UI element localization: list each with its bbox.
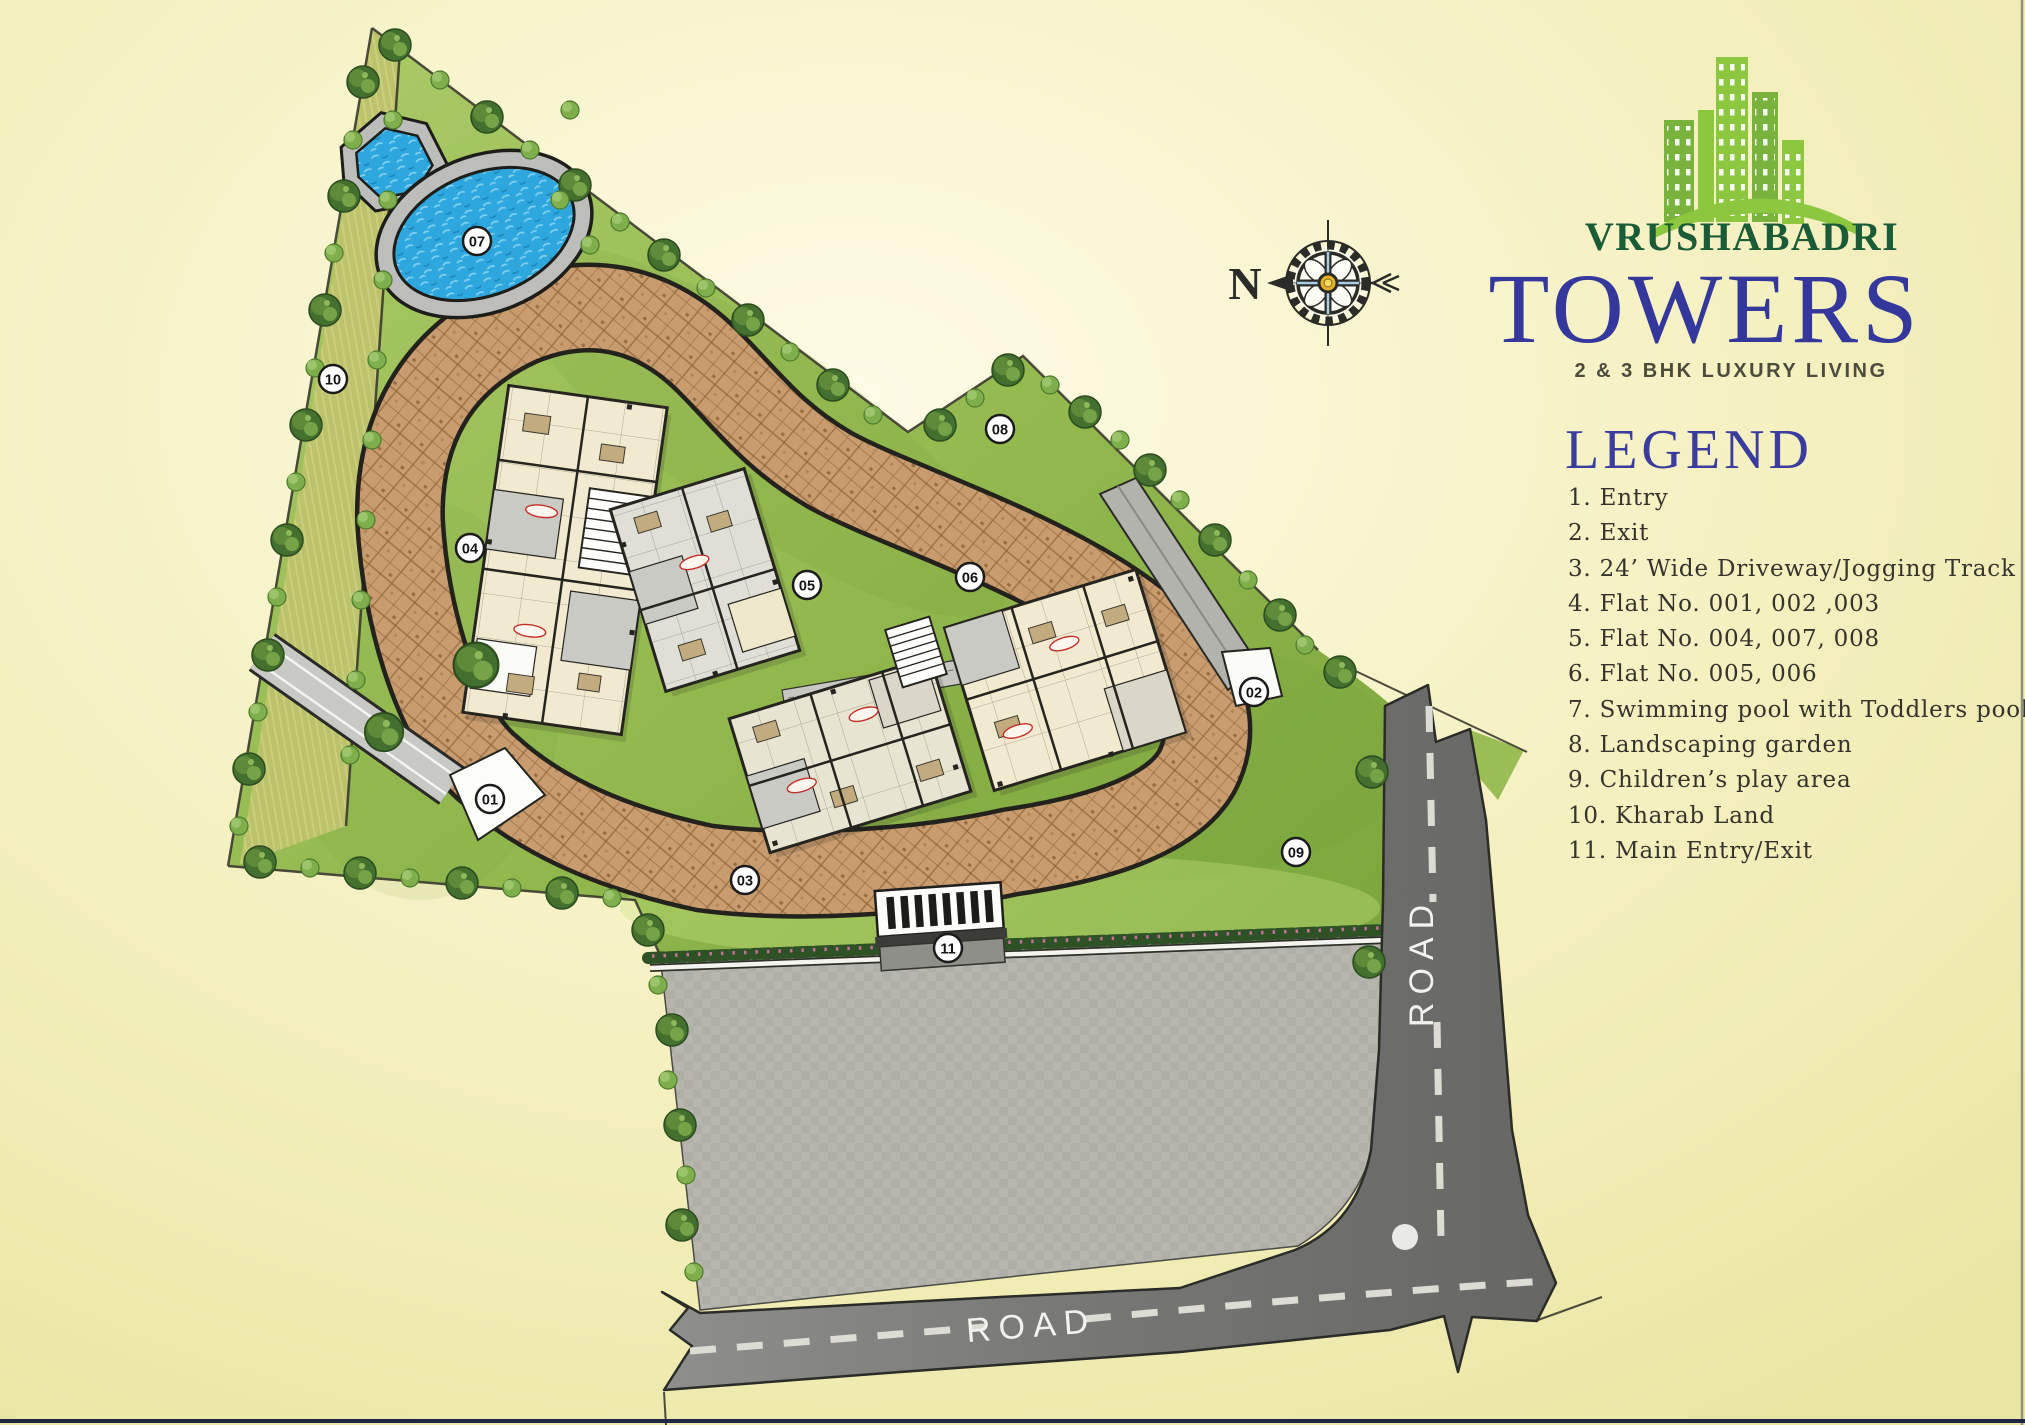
site-plan-poster: ROAD ROAD	[0, 0, 2025, 1425]
legend-item-10: 10. Kharab Land	[1568, 803, 1775, 829]
site-plan-map: ROAD ROAD	[0, 0, 2025, 1425]
svg-text:07: 07	[469, 235, 485, 251]
marker-04: 04	[456, 534, 484, 562]
road-junction-dot	[1392, 1224, 1418, 1250]
svg-text:02: 02	[1246, 686, 1262, 702]
legend-item-4: 4. Flat No. 001, 002 ,003	[1568, 591, 1880, 617]
legend-item-3: 3. 24’ Wide Driveway/Jogging Track	[1568, 556, 2016, 582]
brand-tagline: 2 & 3 BHK LUXURY LIVING	[1574, 360, 1887, 382]
svg-text:09: 09	[1288, 846, 1304, 862]
marker-02: 02	[1240, 678, 1268, 706]
legend-item-9: 9. Children’s play area	[1568, 767, 1851, 793]
marker-10: 10	[319, 365, 347, 393]
road-label-vertical: ROAD	[1403, 897, 1441, 1027]
svg-text:04: 04	[462, 542, 478, 558]
svg-text:08: 08	[992, 423, 1008, 439]
legend-item-2: 2. Exit	[1568, 520, 1649, 546]
marker-07: 07	[463, 227, 491, 255]
marker-01: 01	[476, 785, 504, 813]
marker-08: 08	[986, 415, 1014, 443]
marker-09: 09	[1282, 838, 1310, 866]
legend-item-11: 11. Main Entry/Exit	[1568, 838, 1813, 864]
legend-item-6: 6. Flat No. 005, 006	[1568, 661, 1817, 687]
legend-item-7: 7. Swimming pool with Toddlers pool	[1568, 697, 2025, 723]
brand-name-main: TOWERS	[1488, 253, 1921, 364]
legend-title: LEGEND	[1565, 419, 1813, 481]
svg-text:05: 05	[799, 579, 815, 595]
svg-text:11: 11	[940, 942, 955, 958]
svg-text:01: 01	[482, 793, 498, 809]
marker-03: 03	[731, 866, 759, 894]
compass-north-label: N	[1228, 258, 1261, 309]
legend-item-1: 1. Entry	[1568, 485, 1669, 511]
marker-11: 11	[934, 934, 962, 962]
svg-text:03: 03	[737, 874, 753, 890]
legend-item-5: 5. Flat No. 004, 007, 008	[1568, 626, 1880, 652]
marker-05: 05	[793, 571, 821, 599]
legend-item-8: 8. Landscaping garden	[1568, 732, 1852, 758]
svg-text:10: 10	[325, 373, 341, 389]
marker-06: 06	[956, 563, 984, 591]
svg-text:06: 06	[962, 571, 978, 587]
